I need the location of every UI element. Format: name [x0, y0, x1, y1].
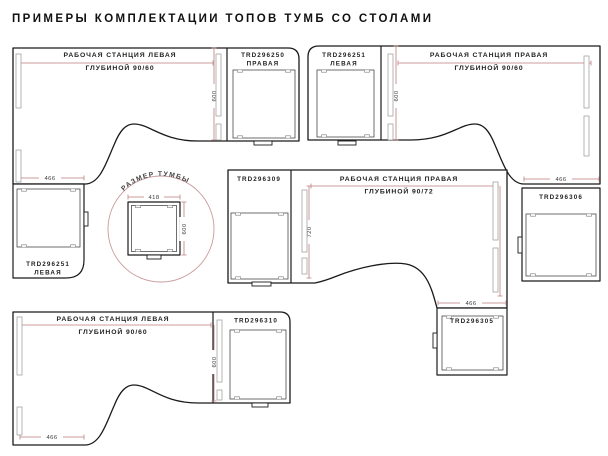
station-4-name: РАБОЧАЯ СТАНЦИЯ ЛЕВАЯ	[57, 316, 170, 323]
station-1-top-cabinet-code: TRD296250	[241, 52, 285, 59]
station-1-top-cabinet-side: ПРАВАЯ	[247, 61, 280, 68]
detail-depth-dim: 600	[182, 223, 188, 234]
station-1-lower-cabinet-side: ЛЕВАЯ	[34, 270, 61, 277]
station-3-lower-cabinet-code: TRD296305	[450, 318, 494, 325]
station-3-depth-dim: 720	[307, 226, 313, 237]
station-4-desk-outline	[13, 312, 290, 445]
station-2-top-cabinet-tab	[338, 141, 356, 145]
station-2-width-dim: 466	[555, 177, 566, 183]
station-2-top-cabinet-side: ЛЕВАЯ	[330, 61, 357, 68]
detail-circle-label: РАЗМЕР ТУМБЫ	[120, 171, 190, 193]
station-2-lower-cabinet-handle	[518, 237, 522, 253]
station-3-left-cabinet-code: TRD296309	[237, 176, 281, 183]
station-1-lower-cabinet-handle	[84, 212, 88, 226]
page-title: ПРИМЕРЫ КОМПЛЕКТАЦИИ ТОПОВ ТУМБ СО СТОЛА…	[12, 13, 433, 25]
station-4-right-cabinet-tab	[252, 403, 268, 407]
station-3-depth-label: ГЛУБИНОЙ 90/72	[364, 187, 433, 196]
detail-width-dim: 418	[148, 195, 159, 201]
station-2-lower-cabinet-outline	[522, 188, 600, 281]
station-3-width-dim: 466	[465, 301, 476, 307]
station-1-width-dim: 466	[44, 176, 55, 182]
station-1-depth-label: ГЛУБИНОЙ 90/60	[85, 63, 154, 72]
detail-cabinet-outline	[128, 202, 180, 255]
station-1-name: РАБОЧАЯ СТАНЦИЯ ЛЕВАЯ	[64, 52, 177, 59]
station-4-depth-label: ГЛУБИНОЙ 90/60	[78, 327, 147, 336]
station-1-top-cabinet-tab	[254, 141, 272, 145]
drawing-sheet: ПРИМЕРЫ КОМПЛЕКТАЦИИ ТОПОВ ТУМБ СО СТОЛА…	[0, 0, 608, 456]
station-3-lower-cabinet-handle	[433, 333, 437, 348]
station-1-desk-outline	[13, 48, 299, 184]
station-2-name: РАБОЧАЯ СТАНЦИЯ ПРАВАЯ	[430, 52, 548, 59]
cabinet-size-detail: 418 600 РАЗМЕР ТУМБЫ	[108, 171, 214, 282]
detail-cabinet-tab	[147, 255, 161, 259]
station-3-name: РАБОЧАЯ СТАНЦИЯ ПРАВАЯ	[340, 176, 458, 183]
furniture-layout-diagram: ПРИМЕРЫ КОМПЛЕКТАЦИИ ТОПОВ ТУМБ СО СТОЛА…	[0, 0, 608, 456]
station-1-lower-cabinet-code: TRD296251	[26, 261, 70, 268]
station-2-lower-cabinet-code: TRD296306	[539, 194, 583, 201]
station-3-left-cabinet-tab	[252, 282, 271, 286]
station-2-depth-label: ГЛУБИНОЙ 90/60	[454, 63, 523, 72]
station-4-width-dim: 466	[46, 435, 57, 441]
station-4-right-cabinet-code: TRD296310	[234, 318, 278, 325]
station-4: 600 466 РАБОЧАЯ СТАНЦИЯ ЛЕВАЯ ГЛУБИНОЙ 9…	[13, 312, 290, 445]
station-2-depth-dim: 600	[394, 90, 400, 101]
station-2-top-cabinet-code: TRD296251	[322, 52, 366, 59]
